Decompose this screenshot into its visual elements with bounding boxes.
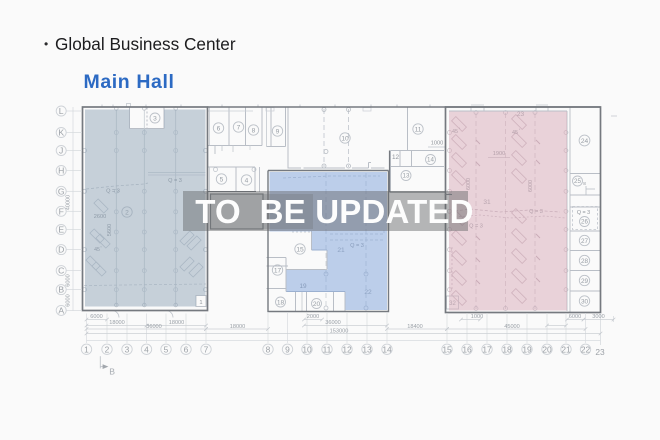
svg-text:8: 8: [252, 127, 256, 134]
svg-text:B: B: [58, 285, 64, 295]
svg-text:5: 5: [164, 344, 169, 354]
svg-text:2000: 2000: [307, 314, 319, 320]
svg-text:7: 7: [237, 124, 241, 131]
svg-text:20: 20: [313, 301, 321, 308]
svg-text:E: E: [58, 225, 64, 235]
svg-text:2: 2: [105, 344, 110, 354]
svg-text:3: 3: [153, 115, 157, 122]
svg-text:8: 8: [583, 181, 586, 186]
svg-text:153000: 153000: [330, 328, 349, 334]
svg-text:B: B: [109, 366, 115, 376]
svg-text:40000: 40000: [66, 195, 72, 211]
svg-text:10: 10: [302, 344, 312, 354]
svg-text:25: 25: [574, 178, 581, 185]
svg-text:30: 30: [581, 298, 589, 305]
svg-text:C: C: [58, 266, 64, 276]
svg-text:17: 17: [482, 344, 492, 354]
svg-text:16: 16: [462, 344, 472, 354]
svg-text:4: 4: [144, 344, 149, 354]
svg-text:6: 6: [217, 125, 221, 132]
svg-text:18: 18: [502, 344, 512, 354]
svg-text:14: 14: [427, 157, 434, 164]
svg-text:20: 20: [542, 344, 552, 354]
svg-text:36000: 36000: [325, 320, 341, 326]
svg-text:7: 7: [204, 344, 209, 354]
svg-text:6000: 6000: [66, 274, 72, 286]
svg-text:13: 13: [403, 173, 410, 180]
svg-text:1: 1: [84, 344, 89, 354]
svg-text:36000: 36000: [146, 324, 162, 330]
svg-text:27: 27: [581, 238, 589, 245]
svg-text:28: 28: [581, 258, 589, 265]
svg-text:3000: 3000: [592, 314, 604, 320]
svg-text:6000: 6000: [90, 314, 102, 320]
svg-text:1: 1: [199, 300, 202, 306]
svg-text:G: G: [58, 186, 65, 196]
svg-text:9: 9: [276, 128, 280, 135]
svg-text:6: 6: [184, 344, 189, 354]
svg-text:1000: 1000: [471, 314, 483, 320]
svg-text:A: A: [58, 306, 64, 316]
svg-text:45000: 45000: [504, 324, 520, 330]
svg-text:18400: 18400: [407, 324, 423, 330]
svg-text:24: 24: [581, 138, 589, 145]
svg-text:11: 11: [323, 344, 332, 354]
svg-text:J: J: [59, 146, 63, 156]
svg-text:6000: 6000: [569, 314, 581, 320]
svg-text:15: 15: [442, 344, 452, 354]
svg-text:8: 8: [266, 344, 271, 354]
svg-text:K: K: [58, 128, 64, 138]
svg-text:14: 14: [382, 344, 392, 354]
svg-text:5: 5: [220, 176, 224, 183]
svg-text:13: 13: [362, 344, 372, 354]
svg-text:6000: 6000: [66, 294, 72, 306]
svg-text:18000: 18000: [169, 320, 185, 326]
svg-text:15: 15: [296, 246, 304, 253]
svg-text:3: 3: [125, 344, 130, 354]
svg-text:26: 26: [581, 219, 588, 226]
svg-text:12: 12: [342, 344, 352, 354]
svg-text:22: 22: [581, 344, 591, 354]
svg-text:21: 21: [561, 344, 571, 354]
svg-text:18000: 18000: [230, 324, 246, 330]
svg-text:1000: 1000: [431, 141, 443, 147]
svg-text:H: H: [58, 166, 64, 176]
svg-text:TO BE UPDATED: TO BE UPDATED: [195, 193, 473, 230]
svg-text:11: 11: [415, 126, 422, 133]
svg-text:4: 4: [245, 177, 249, 184]
svg-text:19: 19: [522, 344, 532, 354]
svg-text:L: L: [59, 106, 64, 116]
svg-text:18000: 18000: [109, 320, 125, 326]
svg-text:9: 9: [285, 344, 290, 354]
svg-text:F: F: [59, 206, 64, 216]
svg-text:10: 10: [341, 135, 349, 142]
svg-text:18: 18: [277, 299, 285, 306]
svg-text:Q = 3: Q = 3: [577, 210, 590, 216]
svg-text:17: 17: [274, 267, 282, 274]
svg-text:12: 12: [392, 154, 400, 161]
svg-text:D: D: [58, 245, 64, 255]
svg-text:23: 23: [595, 347, 605, 357]
svg-text:29: 29: [581, 278, 589, 285]
